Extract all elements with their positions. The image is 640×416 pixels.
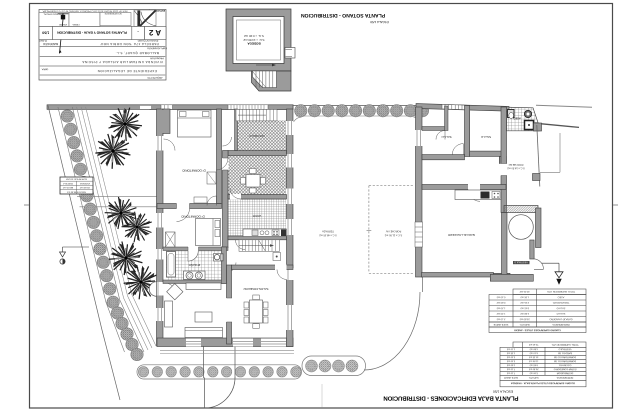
svg-text:9.65 m2: 9.65 m2 <box>529 363 538 366</box>
svg-text:SALA-D: SALA-D <box>556 307 565 310</box>
svg-text:EXPEDIENTE DE LEGALIZACION: EXPEDIENTE DE LEGALIZACION <box>97 69 157 73</box>
svg-text:TERRAZA: TERRAZA <box>322 230 334 233</box>
svg-text:VIVIENDA UNIFAMILIAR AISLADA Y: VIVIENDA UNIFAMILIAR AISLADA Y PISCINA <box>82 60 163 64</box>
svg-text:SUP.UTIL: SUP.UTIL <box>519 323 530 326</box>
svg-text:PLANTAS SOTANO Y BAJA - DISTRI: PLANTAS SOTANO Y BAJA - DISTRIBUCION <box>57 31 127 35</box>
svg-text:10.35 m2: 10.35 m2 <box>528 355 538 358</box>
svg-text:DISTRIBUIDOR: DISTRIBUIDOR <box>556 371 573 374</box>
svg-text:9.45 m2: 9.45 m2 <box>520 307 529 310</box>
svg-text:SUPERFICIE SOLAR: SUPERFICIE SOLAR <box>66 178 88 181</box>
svg-text:ESCALA 1/50: ESCALA 1/50 <box>493 390 513 394</box>
svg-text:Bº BAÑO: Bº BAÑO <box>188 263 200 267</box>
svg-text:A 2: A 2 <box>148 28 161 37</box>
svg-text:TOTAL SUPERFICIE UTIL: TOTAL SUPERFICIE UTIL <box>551 343 579 346</box>
svg-text:1.35 m2: 1.35 m2 <box>506 351 515 354</box>
svg-text:2.40 m2: 2.40 m2 <box>506 359 515 362</box>
svg-text:DEPENDENCIA: DEPENDENCIA <box>556 376 573 379</box>
svg-text:1/50: 1/50 <box>42 30 49 34</box>
svg-text:DORMITORIO D2 SB: DORMITORIO D2 SB <box>553 355 576 358</box>
svg-text:ASEO: ASEO <box>513 117 520 120</box>
svg-text:ASEO: ASEO <box>558 296 565 299</box>
svg-text:SUP.UTIL: SUP.UTIL <box>528 376 539 379</box>
svg-text:MARRATXI: MARRATXI <box>43 42 58 46</box>
svg-text:FIRMA: FIRMA <box>72 23 79 26</box>
svg-text:BODEGA: BODEGA <box>247 41 261 45</box>
svg-text:Nº EXPEDIENTE: Nº EXPEDIENTE <box>104 12 121 15</box>
svg-text:CUADRO SUPERFICIES UTILES - AN: CUADRO SUPERFICIES UTILES - ANEXO <box>514 328 561 331</box>
svg-text:ESCALA Nº PLANO: ESCALA Nº PLANO <box>138 39 159 42</box>
svg-text:7.10 m2: 7.10 m2 <box>506 371 515 374</box>
svg-text:SALA-D: SALA-D <box>556 312 565 315</box>
svg-text:11.90 m2: 11.90 m2 <box>528 359 538 362</box>
svg-text:DEPENDENCIA: DEPENDENCIA <box>552 323 570 326</box>
svg-text:23.80 m2: 23.80 m2 <box>519 318 530 321</box>
svg-text:COCINA-D1: COCINA-D1 <box>558 363 571 366</box>
svg-text:TRASTERO-D1: TRASTERO-D1 <box>552 301 570 304</box>
svg-text:ESCALA 1/50: ESCALA 1/50 <box>370 20 389 24</box>
svg-text:2.10 m2: 2.10 m2 <box>496 318 505 321</box>
svg-text:SUP.ILUM/VE: SUP.ILUM/VE <box>503 376 518 379</box>
svg-text:CUADRO SUPERFICIES UTILES PLAN: CUADRO SUPERFICIES UTILES PLANTA BAJA - … <box>511 382 576 385</box>
svg-text:42.25 m2: 42.25 m2 <box>519 290 530 293</box>
svg-text:BALLOBAR QUART, S.L.: BALLOBAR QUART, S.L. <box>115 51 159 55</box>
svg-text:PROMOTOR: PROMOTOR <box>150 56 164 59</box>
svg-text:0.60 m2: 0.60 m2 <box>496 301 505 304</box>
svg-text:1.95 m2: 1.95 m2 <box>520 296 529 299</box>
svg-text:EMPLAZAMIENTO: EMPLAZAMIENTO <box>147 47 167 50</box>
svg-text:PARCELA: PARCELA <box>62 182 73 185</box>
svg-text:VESTIBULO: VESTIBULO <box>558 347 571 350</box>
svg-text:SALON-COMEDOR: SALON-COMEDOR <box>243 287 268 291</box>
svg-text:2.40 m2: 2.40 m2 <box>506 355 515 358</box>
svg-text:S.IL. = 0.90 m2: S.IL. = 0.90 m2 <box>244 34 264 38</box>
svg-text:PORCHE AN: PORCHE AN <box>508 163 523 166</box>
svg-text:VESTIBULO: VESTIBULO <box>248 134 265 138</box>
svg-text:VACIO: VACIO <box>252 214 261 218</box>
svg-text:SALA-D: SALA-D <box>441 135 451 139</box>
svg-text:1.20 m2: 1.20 m2 <box>496 312 505 315</box>
svg-text:1.60 m2: 1.60 m2 <box>506 363 515 366</box>
svg-text:ANEXOS 96.50 m2: ANEXOS 96.50 m2 <box>66 190 86 193</box>
svg-text:PARCELA 47A 'SON DORIA NOU': PARCELA 47A 'SON DORIA NOU' <box>99 42 158 46</box>
svg-text:4.80 m2: 4.80 m2 <box>529 347 538 350</box>
svg-text:S.U. = 14.50 m2: S.U. = 14.50 m2 <box>243 38 264 42</box>
svg-text:26.80 m2: 26.80 m2 <box>528 367 538 370</box>
svg-text:OBRA: OBRA <box>41 67 48 70</box>
svg-text:PORCHE VIV: PORCHE VIV <box>385 230 401 233</box>
svg-text:S.C.= 14.50 m2: S.C.= 14.50 m2 <box>507 167 525 170</box>
svg-text:DORMITORIO D1 SB: DORMITORIO D1 SB <box>553 359 576 362</box>
svg-text:2.45 m2: 2.45 m2 <box>520 301 529 304</box>
svg-text:PLANO: PLANO <box>39 39 47 42</box>
svg-text:1.20 m2: 1.20 m2 <box>496 307 505 310</box>
svg-text:VESTIBULO: VESTIBULO <box>514 261 528 264</box>
svg-text:5.00 m2: 5.00 m2 <box>529 371 538 374</box>
svg-text:SUP.ILUM/VE: SUP.ILUM/VE <box>493 323 508 326</box>
svg-text:7.10 m2: 7.10 m2 <box>506 367 515 370</box>
svg-text:S.C.= 48.35 m2: S.C.= 48.35 m2 <box>319 233 337 236</box>
svg-text:REF. Nº 1342 FECHA 10.02.03: REF. Nº 1342 FECHA 10.02.03 C/ PEDRO A. … <box>42 9 127 12</box>
svg-text:1.10 m2: 1.10 m2 <box>506 347 515 350</box>
svg-text:880.25 m2: 880.25 m2 <box>62 186 73 189</box>
svg-text:SALA-D: SALA-D <box>481 135 491 139</box>
svg-text:TOTAL SUPERFICIE UTIL: TOTAL SUPERFICIE UTIL <box>546 290 575 293</box>
svg-text:GARAJE-LAVADERO: GARAJE-LAVADERO <box>549 318 572 321</box>
svg-text:4.60 m2: 4.60 m2 <box>520 312 529 315</box>
svg-text:Dº DORMITORIO: Dº DORMITORIO <box>182 169 206 173</box>
svg-text:ESTAR-COMEDOR-D: ESTAR-COMEDOR-D <box>553 367 576 370</box>
svg-text:VIVIENDA: VIVIENDA <box>79 182 90 185</box>
svg-text:0.40 m2: 0.40 m2 <box>496 296 505 299</box>
svg-text:128.80 m2: 128.80 m2 <box>79 186 90 189</box>
svg-text:74.60 m2: 74.60 m2 <box>528 343 538 346</box>
svg-text:PLANTA SOTANO - DISTRIBUCION: PLANTA SOTANO - DISTRIBUCION <box>301 12 386 18</box>
svg-text:PLANTA BAJA EDIFICACIONES - DI: PLANTA BAJA EDIFICACIONES - DISTRIBUCION <box>384 395 519 402</box>
svg-text:ARQUITECTO: ARQUITECTO <box>147 76 162 79</box>
svg-text:6.10 m2: 6.10 m2 <box>529 351 538 354</box>
svg-text:S.C.= 21.50 m2: S.C.= 21.50 m2 <box>384 233 402 236</box>
svg-text:GARAJE-LAVADERO: GARAJE-LAVADERO <box>447 233 475 237</box>
svg-text:Dº DORMITORIO: Dº DORMITORIO <box>181 214 205 218</box>
